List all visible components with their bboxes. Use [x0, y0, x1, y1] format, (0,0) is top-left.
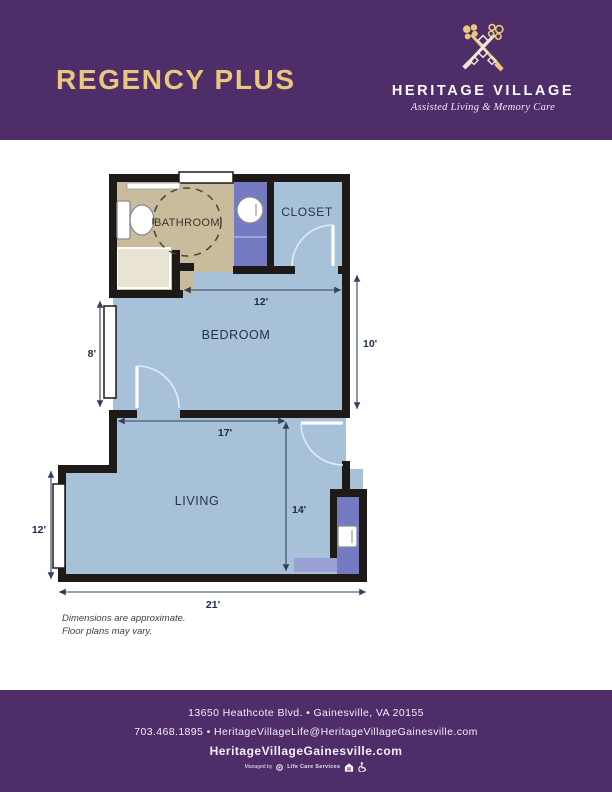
wall [58, 465, 115, 473]
management-company-label: Life Care Services [287, 764, 340, 770]
wall [359, 489, 367, 582]
wall [109, 174, 117, 298]
managed-by-row: Managed by Life Care Services [0, 762, 612, 772]
brand-tagline: Assisted Living & Memory Care [383, 102, 583, 113]
wall [180, 410, 350, 418]
dimension-label: 12' [254, 296, 268, 308]
wall [172, 250, 180, 298]
brand-logo: HERITAGE VILLAGE Assisted Living & Memor… [383, 22, 583, 113]
grab-bar-icon [127, 183, 180, 189]
dimension-label: 17' [218, 427, 232, 439]
disclaimer-line: Dimensions are approximate. [62, 612, 186, 625]
toilet-bowl-icon [130, 205, 154, 235]
wall [58, 574, 367, 582]
footer-band: 13650 Heathcote Blvd. • Gainesville, VA … [0, 690, 612, 792]
wall [233, 266, 295, 274]
managed-by-label: Managed by [245, 764, 273, 770]
kitchenette-counter [294, 558, 337, 572]
window [179, 172, 233, 183]
wall [109, 290, 183, 298]
wall [342, 174, 350, 418]
wheelchair-icon [358, 762, 367, 772]
address-line: 13650 Heathcote Blvd. • Gainesville, VA … [0, 707, 612, 719]
shower-icon [117, 248, 170, 288]
crossed-keys-icon [454, 22, 512, 78]
dimension-label: 14' [292, 504, 306, 516]
wall [267, 178, 274, 274]
disclaimer-line: Floor plans may vary. [62, 625, 186, 638]
wall [330, 497, 337, 558]
dimension-label: 21' [206, 599, 220, 611]
wall [172, 263, 194, 271]
dimension-label: 12' [32, 524, 46, 536]
window [104, 306, 116, 398]
sink-icon [237, 197, 263, 223]
window [53, 484, 65, 568]
dimension-label: 8' [88, 348, 96, 360]
header-band: REGENCY PLUS [0, 0, 612, 140]
bathroom-label: BATHROOM [154, 217, 220, 229]
disclaimer: Dimensions are approximate. Floor plans … [62, 612, 186, 638]
contact-line: 703.468.1895 • HeritageVillageLife@Herit… [0, 726, 612, 738]
closet-label: CLOSET [281, 205, 333, 219]
living-label: LIVING [175, 494, 220, 508]
page-title: REGENCY PLUS [56, 64, 296, 96]
floor-plan: BATHROOM CLOSET BEDROOM LIVING 12' 8' 10… [30, 160, 380, 640]
equal-housing-icon [344, 763, 354, 772]
wall [109, 410, 117, 473]
kitchen-sink-icon [338, 526, 357, 547]
bedroom-label: BEDROOM [202, 328, 271, 342]
flyer-page: REGENCY PLUS [0, 0, 612, 792]
brand-name: HERITAGE VILLAGE [383, 83, 583, 99]
website-link[interactable]: HeritageVillageGainesville.com [0, 744, 612, 758]
life-care-services-icon [276, 764, 283, 771]
dimension-label: 10' [363, 338, 377, 350]
vanity-cabinet [234, 181, 267, 271]
toilet-tank-icon [117, 201, 130, 239]
